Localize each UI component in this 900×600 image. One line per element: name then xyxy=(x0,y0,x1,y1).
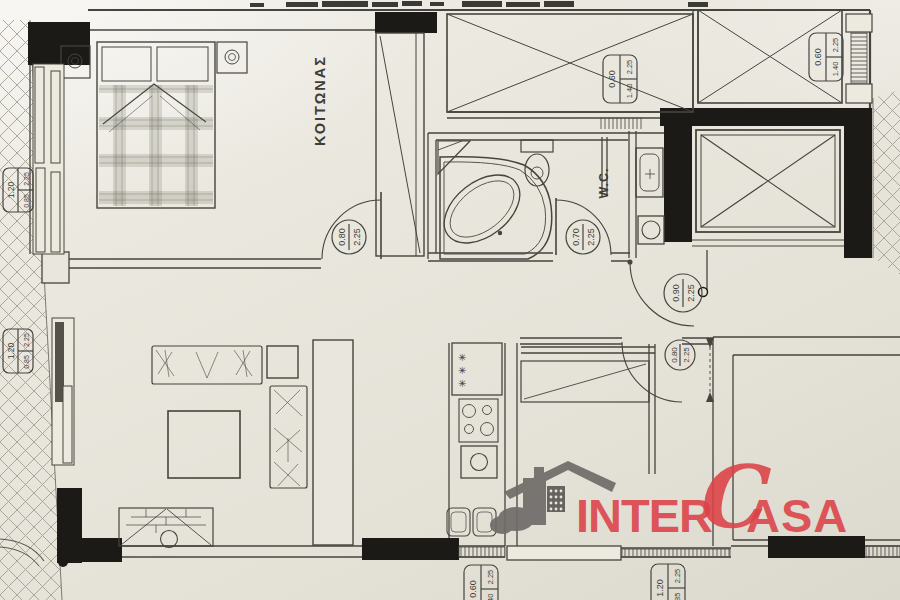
right-balcony-hatch xyxy=(873,90,900,275)
svg-text:2.25: 2.25 xyxy=(673,569,682,584)
svg-text:0.60: 0.60 xyxy=(813,48,823,66)
lamp-icon xyxy=(225,50,239,64)
entrance-door xyxy=(628,260,694,326)
svg-text:0.80: 0.80 xyxy=(670,347,679,363)
double-bed xyxy=(97,42,215,208)
sofa-top xyxy=(152,346,262,384)
intercasa-watermark: INTER C ASA xyxy=(488,452,888,562)
svg-text:2.25: 2.25 xyxy=(831,38,840,53)
dining-balcony-tag: 1.20 2.25 0.85 xyxy=(651,564,685,600)
bathroom-door-tag: 0.70 2.25 xyxy=(566,220,600,254)
svg-text:1.20: 1.20 xyxy=(6,181,16,198)
corner-bathtub xyxy=(431,157,551,259)
cropped-annotation-marks xyxy=(250,1,708,7)
partition-wall xyxy=(313,340,353,545)
svg-text:1.20: 1.20 xyxy=(6,342,16,359)
entrance-door-tag: 0.90 2.25 xyxy=(664,274,702,312)
logo-text-inter: INTER xyxy=(576,492,712,539)
living-balcony-slider xyxy=(52,318,74,465)
toilet xyxy=(521,140,553,186)
svg-text:1.20: 1.20 xyxy=(655,579,665,597)
svg-text:0.60: 0.60 xyxy=(607,70,617,88)
svg-text:0.85: 0.85 xyxy=(23,194,30,208)
kitchen-table xyxy=(521,361,649,402)
fireplace xyxy=(119,508,213,548)
svg-text:2.25: 2.25 xyxy=(23,172,30,186)
side-table xyxy=(267,346,298,378)
svg-text:1.40: 1.40 xyxy=(831,62,840,77)
refrigerator: ✳ ✳ ✳ xyxy=(452,343,502,395)
washing-machine xyxy=(638,216,664,244)
bath-window-tag: 0.60 2.25 1.40 xyxy=(603,55,637,103)
living-room-furniture xyxy=(52,318,353,548)
shaft-window-tag: 0.60 2.25 1.40 xyxy=(809,33,843,81)
svg-text:0.90: 0.90 xyxy=(671,284,681,302)
svg-text:0.85: 0.85 xyxy=(673,593,682,600)
bathroom-fixtures xyxy=(431,140,553,259)
svg-text:0.80: 0.80 xyxy=(337,228,347,246)
svg-text:0.85: 0.85 xyxy=(23,355,30,369)
wardrobe-closet xyxy=(376,33,424,256)
wc-room-label: W.C. xyxy=(597,158,611,208)
kitchen-door-tag: 0.80 2.25 xyxy=(665,340,695,370)
bedroom-furniture xyxy=(61,42,247,208)
svg-text:0.70: 0.70 xyxy=(571,228,581,246)
nightstand-right xyxy=(217,42,247,73)
svg-text:2.25: 2.25 xyxy=(625,60,634,75)
svg-text:0.60: 0.60 xyxy=(468,580,478,598)
sofa-right xyxy=(270,386,307,488)
laundry-sink xyxy=(636,148,663,197)
svg-text:1.40: 1.40 xyxy=(486,594,495,600)
svg-text:2.25: 2.25 xyxy=(23,333,30,347)
bedroom-room-label: ΚΟΙΤΩΝΑΣ xyxy=(312,56,328,146)
bedroom-balcony-slider xyxy=(33,64,64,254)
floor-plan-scan: ✳ ✳ ✳ xyxy=(0,0,900,600)
coffee-table xyxy=(168,411,240,478)
svg-text:2.25: 2.25 xyxy=(682,347,691,363)
laundry-nook xyxy=(636,148,664,244)
svg-text:✳: ✳ xyxy=(458,378,466,389)
svg-text:2.25: 2.25 xyxy=(686,284,696,302)
bedroom-door-tag: 0.80 2.25 xyxy=(332,220,366,254)
bedroom-door xyxy=(322,192,381,259)
svg-text:2.25: 2.25 xyxy=(486,570,495,585)
svg-text:✳: ✳ xyxy=(458,365,466,376)
elevator-shaft xyxy=(692,130,844,246)
cooktop xyxy=(459,399,498,442)
kitchen-window-tag: 0.60 2.25 1.40 xyxy=(464,565,498,600)
right-edge-window xyxy=(846,14,872,103)
svg-text:2.25: 2.25 xyxy=(586,228,596,246)
svg-text:✳: ✳ xyxy=(458,352,466,363)
logo-text-asa: ASA xyxy=(746,492,848,539)
svg-text:1.40: 1.40 xyxy=(625,84,634,99)
svg-text:2.25: 2.25 xyxy=(352,228,362,246)
